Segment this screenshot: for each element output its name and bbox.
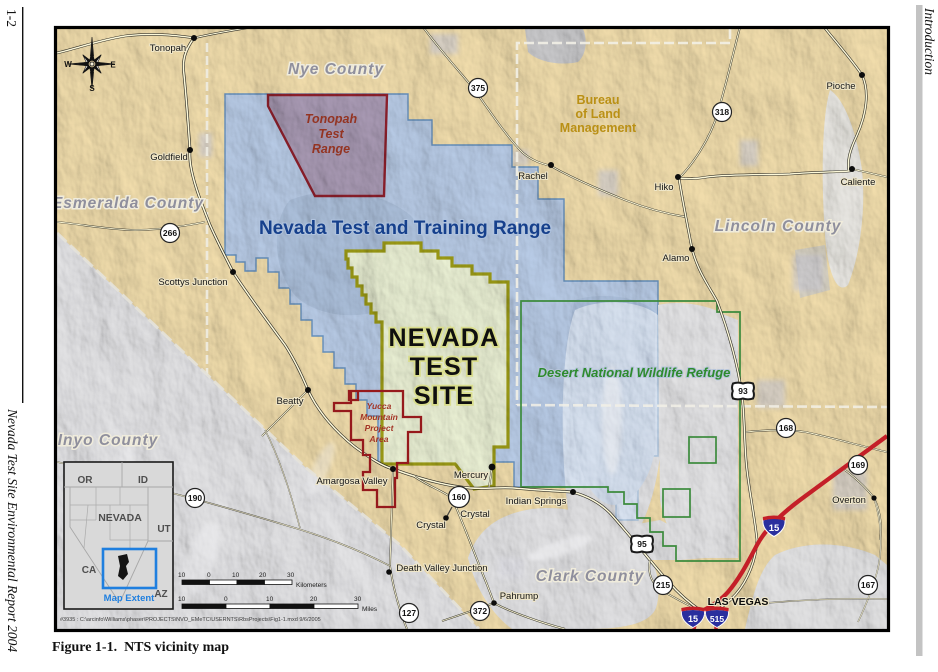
svg-text:SITE: SITE xyxy=(414,382,474,410)
svg-text:Crystal: Crystal xyxy=(416,520,446,531)
svg-text:#3935 : C:\arcinfo\Williams\ph: #3935 : C:\arcinfo\Williams\phaser\PROJE… xyxy=(60,617,321,623)
svg-text:Rachel: Rachel xyxy=(518,171,548,182)
svg-text:Beatty: Beatty xyxy=(277,396,304,407)
svg-text:30: 30 xyxy=(354,596,362,603)
svg-text:Scottys Junction: Scottys Junction xyxy=(158,277,227,288)
svg-text:10: 10 xyxy=(178,572,186,579)
svg-text:Nevada Test and Training Range: Nevada Test and Training Range xyxy=(259,218,551,239)
svg-text:LAS VEGAS: LAS VEGAS xyxy=(708,596,769,608)
svg-text:Project: Project xyxy=(365,423,395,433)
svg-text:Pioche: Pioche xyxy=(826,81,855,92)
svg-text:30: 30 xyxy=(287,572,295,579)
svg-text:Map Extent: Map Extent xyxy=(104,593,156,604)
svg-text:of Land: of Land xyxy=(575,107,620,121)
svg-text:NEVADA: NEVADA xyxy=(98,512,142,524)
svg-text:20: 20 xyxy=(310,596,318,603)
svg-text:TEST: TEST xyxy=(410,353,479,381)
svg-text:Inyo County: Inyo County xyxy=(58,432,159,449)
svg-text:Death Valley Junction: Death Valley Junction xyxy=(396,563,487,574)
svg-text:Nevada Test Site Environmental: Nevada Test Site Environmental Report 20… xyxy=(5,408,20,652)
svg-text:Caliente: Caliente xyxy=(841,177,876,188)
svg-text:10: 10 xyxy=(178,596,186,603)
svg-text:Alamo: Alamo xyxy=(663,253,690,264)
svg-text:15: 15 xyxy=(688,614,698,624)
svg-text:169: 169 xyxy=(851,460,865,470)
svg-text:Management: Management xyxy=(560,121,637,135)
svg-text:UT: UT xyxy=(157,524,170,535)
svg-text:167: 167 xyxy=(861,580,875,590)
svg-text:Nye County: Nye County xyxy=(288,61,385,78)
svg-text:20: 20 xyxy=(259,572,267,579)
svg-text:Clark County: Clark County xyxy=(536,568,645,585)
svg-text:Figure 1-1. NTS vicinity map: Figure 1-1. NTS vicinity map xyxy=(52,640,229,655)
svg-text:515: 515 xyxy=(710,614,724,624)
svg-text:Miles: Miles xyxy=(362,606,378,613)
svg-text:190: 190 xyxy=(188,493,202,503)
svg-text:Tonopah: Tonopah xyxy=(150,43,186,54)
svg-text:E: E xyxy=(110,61,116,70)
svg-text:Mountain: Mountain xyxy=(360,412,398,422)
svg-text:318: 318 xyxy=(715,107,729,117)
svg-text:Area: Area xyxy=(369,434,389,444)
svg-text:Test: Test xyxy=(318,127,344,141)
svg-text:Kilometers: Kilometers xyxy=(296,582,327,589)
svg-text:10: 10 xyxy=(266,596,274,603)
svg-text:Introduction: Introduction xyxy=(922,7,937,75)
svg-text:215: 215 xyxy=(656,580,670,590)
svg-text:Indian Springs: Indian Springs xyxy=(506,496,567,507)
svg-text:Hiko: Hiko xyxy=(654,182,673,193)
svg-text:168: 168 xyxy=(779,423,793,433)
svg-text:Goldfield: Goldfield xyxy=(150,152,188,163)
svg-text:Amargosa Valley: Amargosa Valley xyxy=(316,476,387,487)
svg-text:1-2: 1-2 xyxy=(4,9,19,27)
svg-text:Pahrump: Pahrump xyxy=(500,591,539,602)
svg-text:Yucca: Yucca xyxy=(367,401,392,411)
svg-text:Crystal: Crystal xyxy=(460,509,490,520)
svg-text:W: W xyxy=(64,60,72,69)
svg-text:266: 266 xyxy=(163,228,177,238)
svg-text:Tonopah: Tonopah xyxy=(305,112,358,126)
svg-text:372: 372 xyxy=(473,606,487,616)
svg-text:AZ: AZ xyxy=(154,589,167,600)
svg-text:160: 160 xyxy=(452,492,466,502)
svg-text:95: 95 xyxy=(637,539,647,549)
svg-text:OR: OR xyxy=(78,475,94,486)
svg-text:15: 15 xyxy=(769,523,780,534)
svg-text:Bureau: Bureau xyxy=(576,93,619,107)
svg-text:Desert National Wildlife Refug: Desert National Wildlife Refuge xyxy=(538,365,731,380)
svg-text:10: 10 xyxy=(232,572,240,579)
svg-text:NEVADA: NEVADA xyxy=(389,324,500,352)
svg-text:CA: CA xyxy=(82,565,96,576)
svg-text:ID: ID xyxy=(138,475,148,486)
svg-text:127: 127 xyxy=(402,608,416,618)
svg-text:93: 93 xyxy=(738,386,748,396)
svg-text:Overton: Overton xyxy=(832,495,866,506)
svg-text:0: 0 xyxy=(207,572,211,579)
svg-text:Mercury: Mercury xyxy=(454,470,489,481)
svg-text:Lincoln County: Lincoln County xyxy=(715,218,842,235)
svg-text:375: 375 xyxy=(471,83,485,93)
svg-text:S: S xyxy=(89,84,95,93)
svg-text:Esmeralda County: Esmeralda County xyxy=(52,195,204,212)
svg-text:0: 0 xyxy=(224,596,228,603)
svg-text:Range: Range xyxy=(312,142,350,156)
